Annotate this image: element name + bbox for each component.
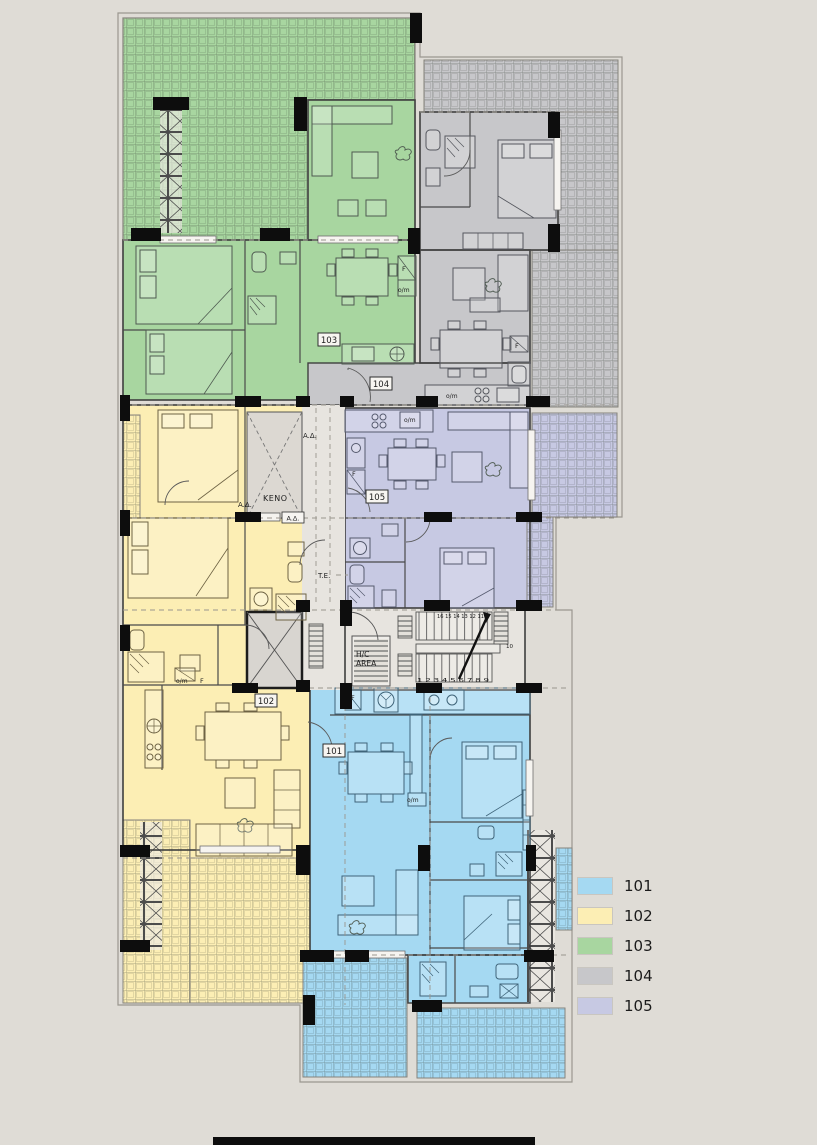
fridge-label-104: F <box>515 342 519 350</box>
om-label-102: o/m <box>176 678 188 685</box>
legend-label-105: 105 <box>624 997 653 1015</box>
legend-item-102: 102 <box>577 907 653 925</box>
unit-label-105: 105 <box>366 490 388 503</box>
legend-item-101: 101 <box>577 877 653 895</box>
om-label-103: o/m <box>398 287 410 294</box>
legend-swatch-105 <box>577 997 613 1015</box>
unit-label-104: 104 <box>370 377 392 390</box>
unit-label-101: 101 <box>323 744 345 757</box>
legend-label-102: 102 <box>624 907 653 925</box>
svg-text:103: 103 <box>321 336 337 346</box>
fridge-label-102: F <box>200 677 204 685</box>
om-label-101: o/m <box>407 797 419 804</box>
ad-label-3: A.Δ. <box>287 515 300 523</box>
fridge-label-103: F <box>402 265 406 273</box>
svg-text:102: 102 <box>258 697 274 707</box>
legend-item-103: 103 <box>577 937 653 955</box>
legend-item-104: 104 <box>577 967 653 985</box>
stair-numbers-top: 16 15 14 13 12 11 <box>437 614 484 620</box>
floor-plan-drawing: 103 104 105 102 101 KENO A.Δ. A.Δ. A.Δ. … <box>0 0 817 1145</box>
fridge-label-105: F <box>352 470 356 478</box>
legend-swatch-101 <box>577 877 613 895</box>
svg-text:105: 105 <box>369 493 385 503</box>
unit-label-102: 102 <box>255 694 277 707</box>
ad-label-1: A.Δ. <box>303 432 317 440</box>
legend-item-105: 105 <box>577 997 653 1015</box>
legend-label-103: 103 <box>624 937 653 955</box>
om-label-104: o/m <box>446 393 458 400</box>
svg-text:104: 104 <box>373 380 389 390</box>
unit-label-103: 103 <box>318 333 340 346</box>
legend-swatch-103 <box>577 937 613 955</box>
hc-area-label-2: AREA <box>356 659 377 668</box>
hc-area-label-1: H/C <box>356 650 369 659</box>
om-label-105: o/m <box>404 417 416 424</box>
legend-swatch-104 <box>577 967 613 985</box>
keno-label: KENO <box>263 494 288 503</box>
legend-swatch-102 <box>577 907 613 925</box>
svg-text:101: 101 <box>326 747 342 757</box>
legend-label-101: 101 <box>624 877 653 895</box>
keno-void <box>247 412 302 521</box>
te-label: T.E. <box>317 572 330 580</box>
fridge-label-101: F <box>351 694 355 702</box>
legend-label-104: 104 <box>624 967 653 985</box>
ad-label-2: A.Δ. <box>238 501 252 509</box>
stair-number-mid: 10 <box>506 644 513 650</box>
stair-numbers-bottom: 1 2 3 4 5 6 7 8 9 <box>417 678 490 684</box>
legend: 101 102 103 104 105 <box>577 877 653 1015</box>
